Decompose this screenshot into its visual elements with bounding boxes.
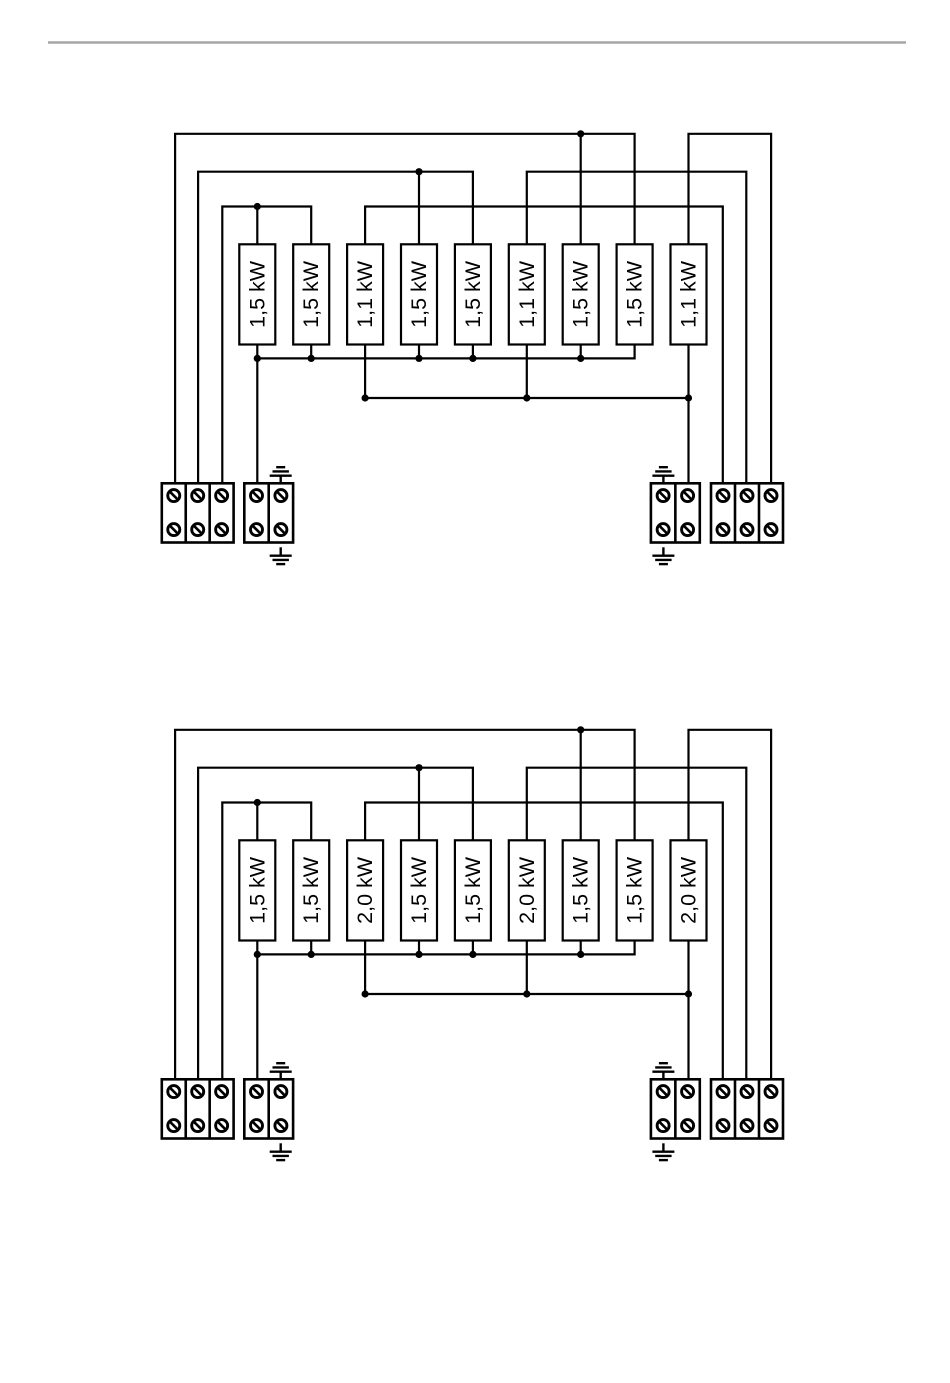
svg-text:1,5 kW: 1,5 kW	[245, 856, 269, 924]
svg-text:1,5 kW: 1,5 kW	[245, 260, 269, 328]
svg-text:1,5 kW: 1,5 kW	[461, 856, 485, 924]
svg-text:1,5 kW: 1,5 kW	[623, 260, 647, 328]
svg-text:1,5 kW: 1,5 kW	[623, 856, 647, 924]
svg-text:1,5 kW: 1,5 kW	[299, 260, 323, 328]
svg-text:2,0 kW: 2,0 kW	[353, 856, 377, 924]
svg-text:1,5 kW: 1,5 kW	[569, 856, 593, 924]
svg-text:1,1 kW: 1,1 kW	[677, 260, 701, 328]
svg-text:1,5 kW: 1,5 kW	[299, 856, 323, 924]
svg-text:1,5 kW: 1,5 kW	[407, 260, 431, 328]
svg-text:1,5 kW: 1,5 kW	[461, 260, 485, 328]
svg-text:1,1 kW: 1,1 kW	[515, 260, 539, 328]
svg-text:2,0 kW: 2,0 kW	[677, 856, 701, 924]
svg-text:1,5 kW: 1,5 kW	[407, 856, 431, 924]
svg-text:1,1 kW: 1,1 kW	[353, 260, 377, 328]
svg-text:2,0 kW: 2,0 kW	[515, 856, 539, 924]
svg-text:1,5 kW: 1,5 kW	[569, 260, 593, 328]
